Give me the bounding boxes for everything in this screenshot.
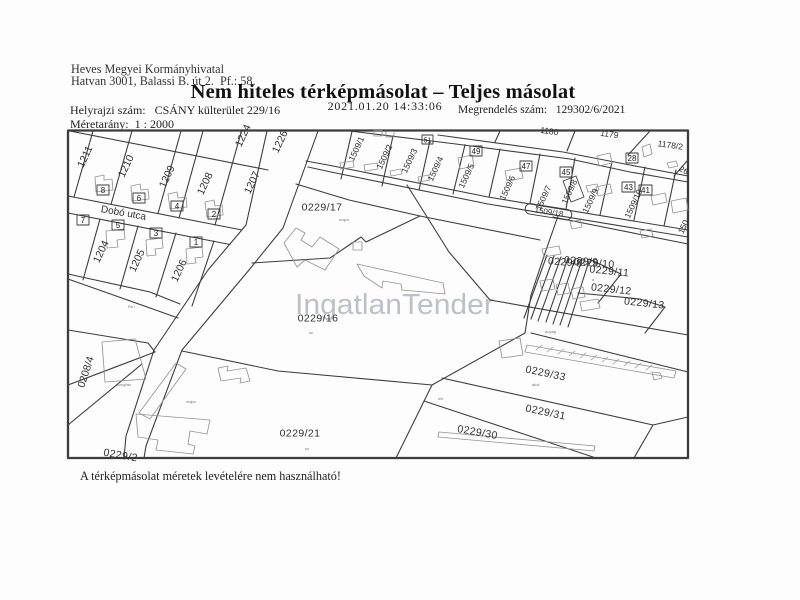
svg-text:1226: 1226 <box>270 128 291 154</box>
svg-text:47: 47 <box>522 162 531 171</box>
svg-text:0229/2: 0229/2 <box>102 447 138 465</box>
svg-text:mk: mk <box>438 396 443 401</box>
svg-text:0229/17: 0229/17 <box>302 202 343 214</box>
svg-text:1205: 1205 <box>127 247 148 273</box>
svg-text:1: 1 <box>194 238 199 247</box>
svg-text:45: 45 <box>562 168 571 177</box>
svg-text:1211: 1211 <box>75 144 95 170</box>
svg-text:1509/8: 1509/8 <box>559 178 579 206</box>
svg-text:3: 3 <box>154 229 159 238</box>
svg-text:0229/33: 0229/33 <box>524 363 566 383</box>
svg-text:major: major <box>339 217 350 222</box>
svg-text:5: 5 <box>116 221 121 230</box>
svg-text:1509/6: 1509/6 <box>497 174 517 202</box>
svg-text:major: major <box>186 399 197 404</box>
svg-text:43: 43 <box>624 183 633 192</box>
svg-text:1207: 1207 <box>242 169 263 195</box>
svg-text:28: 28 <box>628 154 637 163</box>
svg-text:1178/2: 1178/2 <box>657 138 684 151</box>
svg-text:sz: sz <box>305 446 309 451</box>
svg-text:4: 4 <box>175 202 180 211</box>
svg-text:1208: 1208 <box>195 170 216 196</box>
svg-text:2: 2 <box>212 210 217 219</box>
svg-text:49: 49 <box>472 147 481 156</box>
svg-text:0208/4: 0208/4 <box>75 355 96 389</box>
svg-text:sz: sz <box>309 330 313 335</box>
svg-text:7: 7 <box>81 216 86 225</box>
svg-text:0229/21: 0229/21 <box>280 428 321 440</box>
svg-text:1509/1: 1509/1 <box>346 135 366 163</box>
svg-text:51: 51 <box>424 138 432 145</box>
svg-text:üvegház: üvegház <box>116 382 131 387</box>
svg-text:8: 8 <box>101 186 106 195</box>
svg-text:1206: 1206 <box>169 257 190 283</box>
svg-text:akol: akol <box>532 382 539 387</box>
svg-text:1179: 1179 <box>600 128 620 140</box>
svg-text:0229/16: 0229/16 <box>298 313 339 325</box>
svg-text:Rk t: Rk t <box>128 304 136 309</box>
svg-text:anyag: anyag <box>545 329 556 334</box>
svg-text:1180: 1180 <box>540 125 560 137</box>
svg-text:1509/9: 1509/9 <box>580 187 600 215</box>
svg-text:1509/3: 1509/3 <box>399 147 419 175</box>
svg-text:1224: 1224 <box>233 122 254 148</box>
svg-text:1210: 1210 <box>116 153 137 179</box>
svg-text:1509/2: 1509/2 <box>374 143 394 171</box>
svg-text:1209: 1209 <box>157 163 178 189</box>
svg-text:6: 6 <box>137 194 142 203</box>
svg-text:1509/4: 1509/4 <box>425 155 445 183</box>
svg-text:0229/31: 0229/31 <box>524 402 566 422</box>
svg-text:0229/13: 0229/13 <box>623 295 665 311</box>
